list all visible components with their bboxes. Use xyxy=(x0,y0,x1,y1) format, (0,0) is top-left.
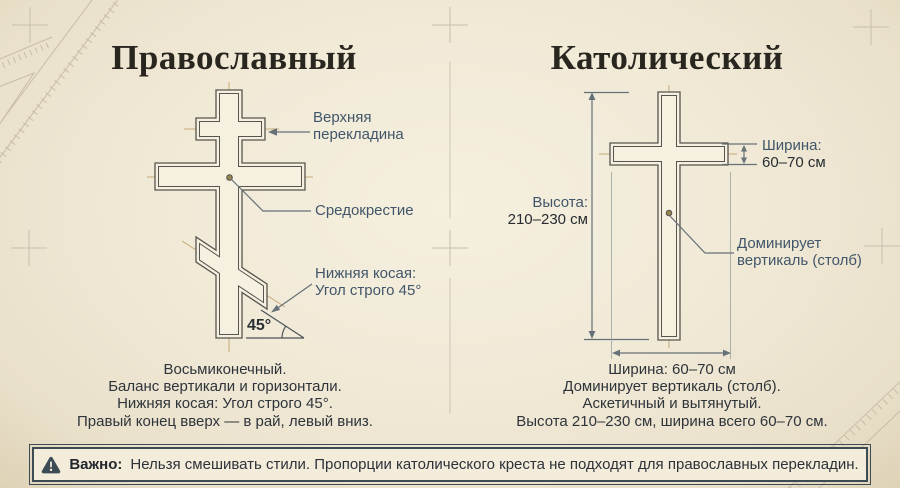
upper-crossbar-label-line2: перекладина xyxy=(313,127,404,144)
warning-bold-text: Важно: xyxy=(69,456,122,473)
lower-slant-label-line1: Нижняя косая: xyxy=(315,266,421,283)
orthodox-summary-line: Восьмиконечный. xyxy=(75,361,375,378)
catholic-title: Католический xyxy=(527,38,807,78)
width-value: 60–70 см xyxy=(762,155,826,172)
catholic-summary-line: Ширина: 60–70 см xyxy=(512,361,832,378)
width-label: Ширина: xyxy=(762,138,826,155)
orthodox-cross-drawing xyxy=(155,90,305,338)
catholic-summary-line: Аскетичный и вытянутый. xyxy=(512,395,832,412)
warning-triangle-icon xyxy=(41,456,61,474)
dominant-vertical-line1: Доминирует xyxy=(737,236,862,253)
lower-slant-label-line2: Угол строго 45° xyxy=(315,283,421,300)
set-square-decoration xyxy=(0,0,122,176)
orthodox-summary-line: Баланс вертикали и горизонтали. xyxy=(75,378,375,395)
blueprint-infographic: Православный Католический Верхняя перекл… xyxy=(0,0,900,488)
catholic-summary-line: Доминирует вертикаль (столб). xyxy=(512,378,832,395)
width-dimension-label: Ширина: 60–70 см xyxy=(762,138,826,171)
dominant-vertical-label: Доминирует вертикаль (столб) xyxy=(737,236,862,269)
upper-crossbar-label: Верхняя перекладина xyxy=(313,110,404,143)
dominant-vertical-line2: вертикаль (столб) xyxy=(737,253,862,270)
warning-banner: Важно: Нельзя смешивать стили. Пропорции… xyxy=(32,447,868,482)
upper-crossbar-label-line1: Верхняя xyxy=(313,110,404,127)
catholic-summary-line: Высота 210–230 см, ширина всего 60–70 см… xyxy=(512,413,832,430)
crossing-label: Средокрестие xyxy=(315,203,414,220)
height-value: 210–230 см xyxy=(505,212,588,229)
height-label: Высота: xyxy=(505,195,588,212)
warning-bold-prefix: Важно: xyxy=(69,456,122,473)
arrowhead xyxy=(271,305,280,313)
orthodox-title: Православный xyxy=(94,38,374,78)
lower-slant-label: Нижняя косая: Угол строго 45° xyxy=(315,266,421,299)
catholic-summary: Ширина: 60–70 см Доминирует вертикаль (с… xyxy=(512,361,832,430)
orthodox-summary-line: Правый конец вверх — в рай, левый вниз. xyxy=(75,413,375,430)
post-dot xyxy=(666,210,672,216)
warning-text: Нельзя смешивать стили. Пропорции католи… xyxy=(130,456,858,473)
orthodox-summary: Восьмиконечный. Баланс вертикали и гориз… xyxy=(75,361,375,430)
catholic-cross-drawing xyxy=(610,92,728,340)
angle-45-label: 45° xyxy=(247,317,271,335)
orthodox-summary-line: Нижняя косая: Угол строго 45°. xyxy=(75,395,375,412)
height-dimension-label: Высота: 210–230 см xyxy=(505,195,588,228)
